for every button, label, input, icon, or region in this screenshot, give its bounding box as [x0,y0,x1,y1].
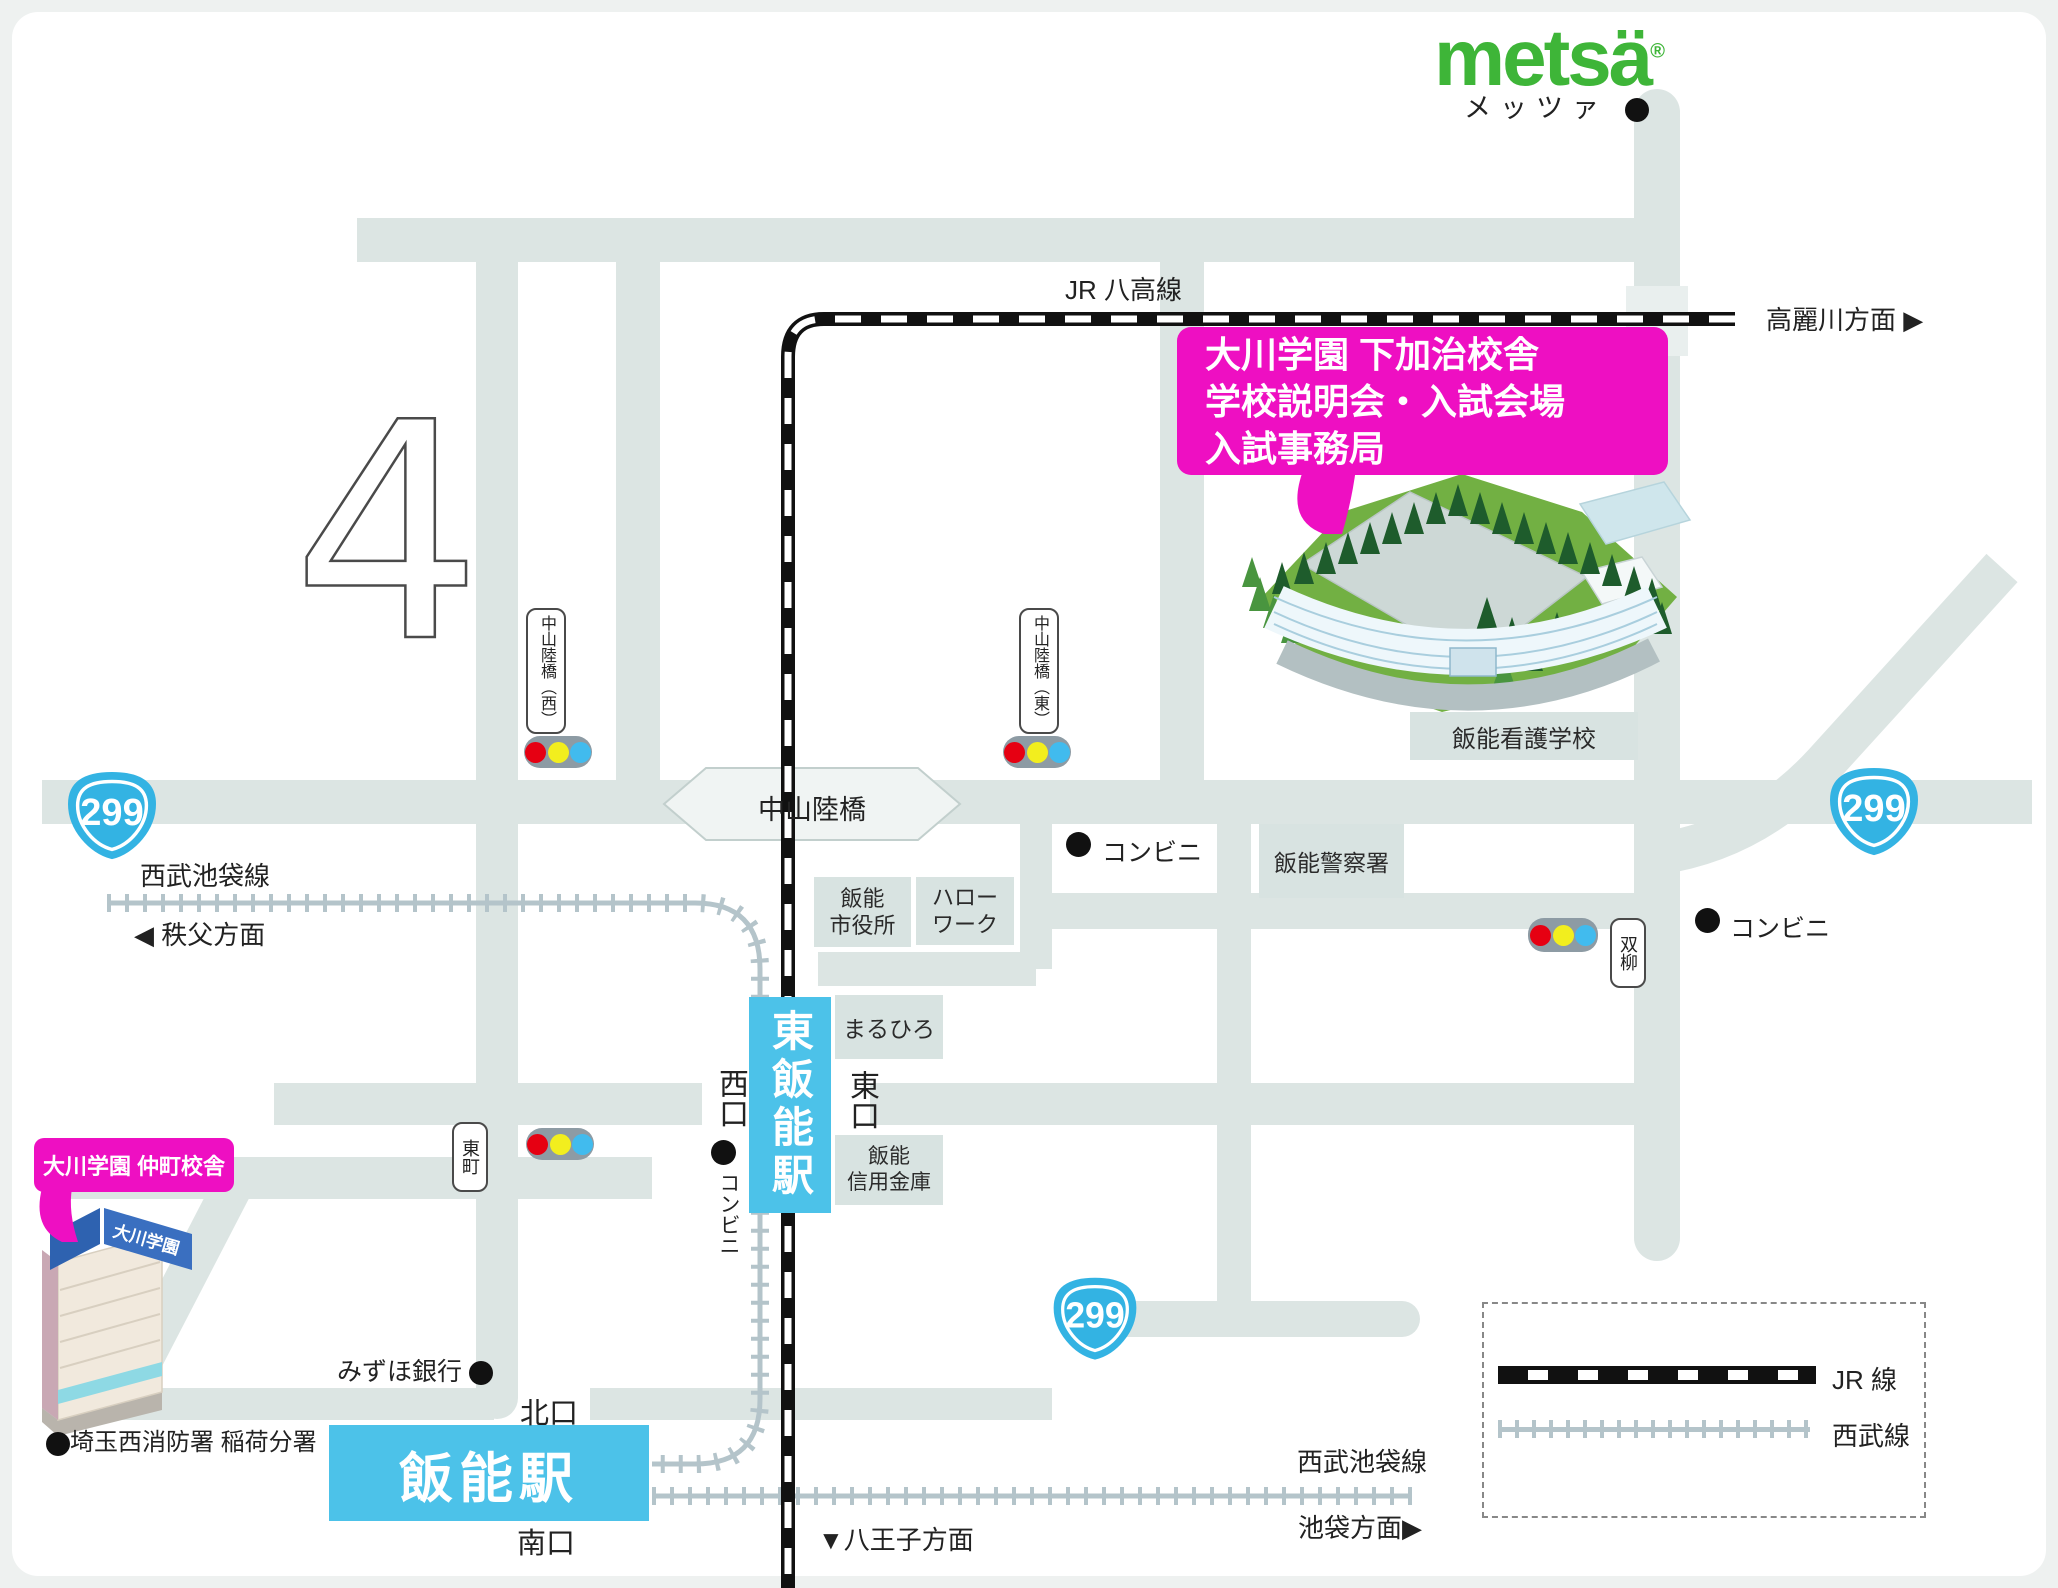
convenience-label-west-exit: コンビニ [713,1172,743,1256]
map-numeral-4: 4 [292,359,483,708]
route-number: 299 [1065,1296,1125,1336]
traffic-signal-nakayama-west [524,736,592,768]
map-canvas: 大川学園 299 299 299 4 metsä® メッツァ JR 八高線 高麗… [12,12,2046,1576]
higashi-hanno-station: 東飯能駅 [749,997,831,1213]
nakayama-west-sign: 中山陸橋（西） [526,608,566,734]
convenience-marker-center [1066,832,1091,857]
city-hall-line1: 飯能 [829,885,895,913]
hello-work-block: ハロー ワーク [916,877,1014,945]
hanno-station: 飯能駅 [329,1425,649,1521]
convenience-label-right: コンビニ [1730,909,1830,945]
chichibu-direction-label: ◀ 秩父方面 [134,915,265,952]
left-arrow-icon: ◀ [134,920,154,950]
shinkin-line1: 飯能 [847,1144,931,1170]
hello-work-line2: ワーク [932,911,998,939]
right-arrow-icon: ▶ [1402,1513,1422,1543]
route-shield-left: 299 [72,776,152,855]
seibu-line-label-bottom: 西武池袋線 [1297,1442,1427,1479]
legend-box: JR 線 西武線 [1482,1302,1926,1518]
komagawa-direction-label: 高麗川方面 ▶ [1766,300,1923,337]
traffic-signal-futatsuyanagi [1528,918,1598,952]
city-hall-line2: 市役所 [829,912,895,940]
mizuho-bank-label: みずほ銀行 [337,1352,493,1388]
nakayama-east-sign: 中山陸橋（東） [1019,608,1059,734]
traffic-signal-higashicho [526,1128,594,1160]
seibu-line-label-left: 西武池袋線 [140,856,270,893]
fire-station-marker [46,1432,70,1456]
shinkin-line2: 信用金庫 [847,1170,931,1196]
hachioji-direction-label: ▼八王子方面 [818,1520,974,1557]
fire-station-label: 埼玉西消防署 稲荷分署 [46,1422,317,1457]
nakayama-bridge-label: 中山陸橋 [712,788,912,827]
shimokaji-callout-line2: 学校説明会・入試会場 [1205,378,1668,425]
route-shield-right: 299 [1834,772,1914,851]
registered-mark-icon: ® [1650,40,1662,62]
metsa-location-dot [1625,98,1649,122]
city-hall-block: 飯能 市役所 [814,877,911,947]
nakacho-callout: 大川学園 仲町校舎 [34,1138,234,1192]
higashicho-sign: 東町 [452,1122,488,1192]
west-exit-label: 西口 [708,1068,752,1128]
down-arrow-icon: ▼ [818,1525,844,1555]
legend-seibu-line-sample [1498,1420,1810,1438]
traffic-signal-nakayama-east [1003,736,1071,768]
east-exit-label: 東口 [839,1070,883,1130]
convenience-marker-west-exit [711,1140,736,1165]
legend-jr-label: JR 線 [1832,1360,1897,1397]
route-number: 299 [1842,788,1905,830]
access-map: 大川学園 299 299 299 4 metsä® メッツァ JR 八高線 高麗… [0,0,2058,1588]
shimokaji-callout-line3: 入試事務局 [1205,425,1668,472]
police-station-block: 飯能警察署 [1259,824,1404,898]
convenience-marker-right [1695,908,1720,933]
futatsuyanagi-sign: 双柳 [1610,918,1646,988]
shimokaji-callout: 大川学園 下加治校舎 学校説明会・入試会場 入試事務局 [1177,327,1668,475]
shinkin-bank-block: 飯能 信用金庫 [835,1135,943,1205]
right-arrow-icon: ▶ [1903,305,1923,335]
route-shield-center: 299 [1057,1282,1132,1356]
maruhiro-block: まるひろ [835,995,943,1059]
jr-hachiko-label: JR 八高線 [1065,270,1182,307]
convenience-label-center: コンビニ [1102,833,1202,869]
shimokaji-callout-line1: 大川学園 下加治校舎 [1205,331,1668,378]
legend-seibu-label: 西武線 [1832,1416,1910,1453]
legend-jr-line-sample [1498,1366,1816,1384]
ikebukuro-direction-label: 池袋方面▶ [1298,1508,1422,1545]
route-number: 299 [80,792,143,834]
nursing-school-block: 飯能看護学校 [1410,712,1638,760]
hello-work-line1: ハロー [932,884,998,912]
mizuho-bank-marker [469,1361,493,1385]
metsa-katakana: メッツァ [1464,86,1649,125]
north-exit-label: 北口 [520,1390,578,1432]
south-exit-label: 南口 [517,1520,575,1562]
